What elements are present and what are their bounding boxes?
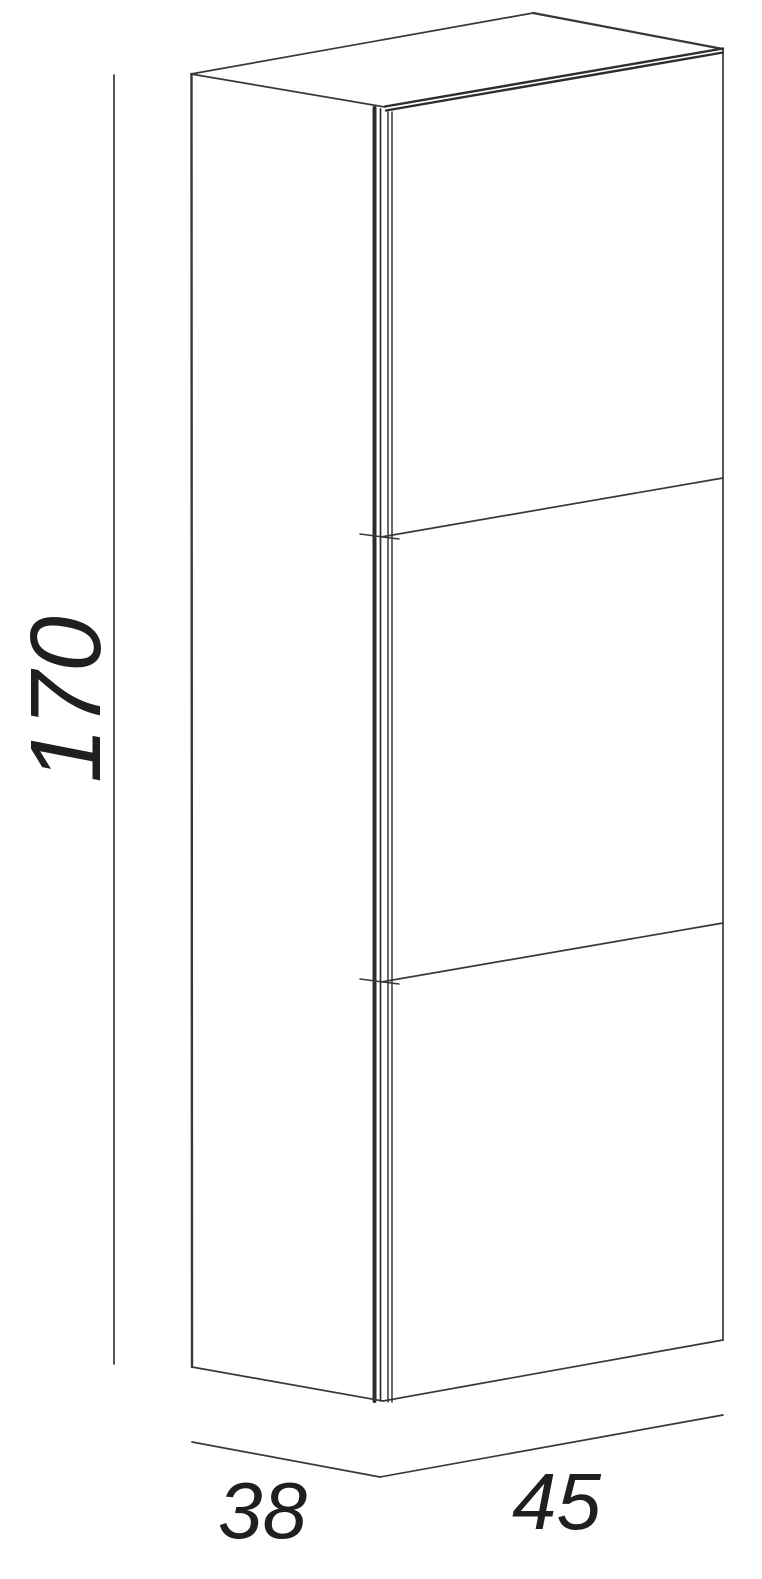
cabinet-dimension-drawing: 170 38 45 (0, 0, 762, 1579)
height-dimension-label: 170 (10, 616, 122, 783)
door-division-line-2 (381, 923, 723, 982)
top-face-front-left-edge (191, 74, 385, 107)
cabinet-outline (191, 13, 723, 1402)
front-left-vertical-edge (192, 74, 193, 1367)
door-top-edge (386, 53, 723, 111)
top-face-back-right-edge (533, 13, 723, 49)
width-dimension: 45 (380, 1415, 723, 1546)
top-face-back-left-edge (191, 13, 533, 74)
height-dimension: 170 (10, 75, 122, 1364)
door-division-line-1 (381, 478, 723, 537)
cabinet-drawing-svg: 170 38 45 (0, 0, 762, 1579)
top-face-front-right-edge (385, 49, 723, 107)
door-divisions (360, 478, 723, 984)
depth-dimension-label: 38 (218, 1466, 307, 1555)
dimension-annotations: 170 38 45 (10, 75, 723, 1555)
near-corner-edge (375, 108, 393, 1402)
depth-dimension: 38 (192, 1442, 380, 1555)
bottom-edge-front-face (383, 1340, 723, 1401)
width-dimension-label: 45 (512, 1457, 601, 1546)
bottom-edge-left-face (192, 1367, 383, 1401)
